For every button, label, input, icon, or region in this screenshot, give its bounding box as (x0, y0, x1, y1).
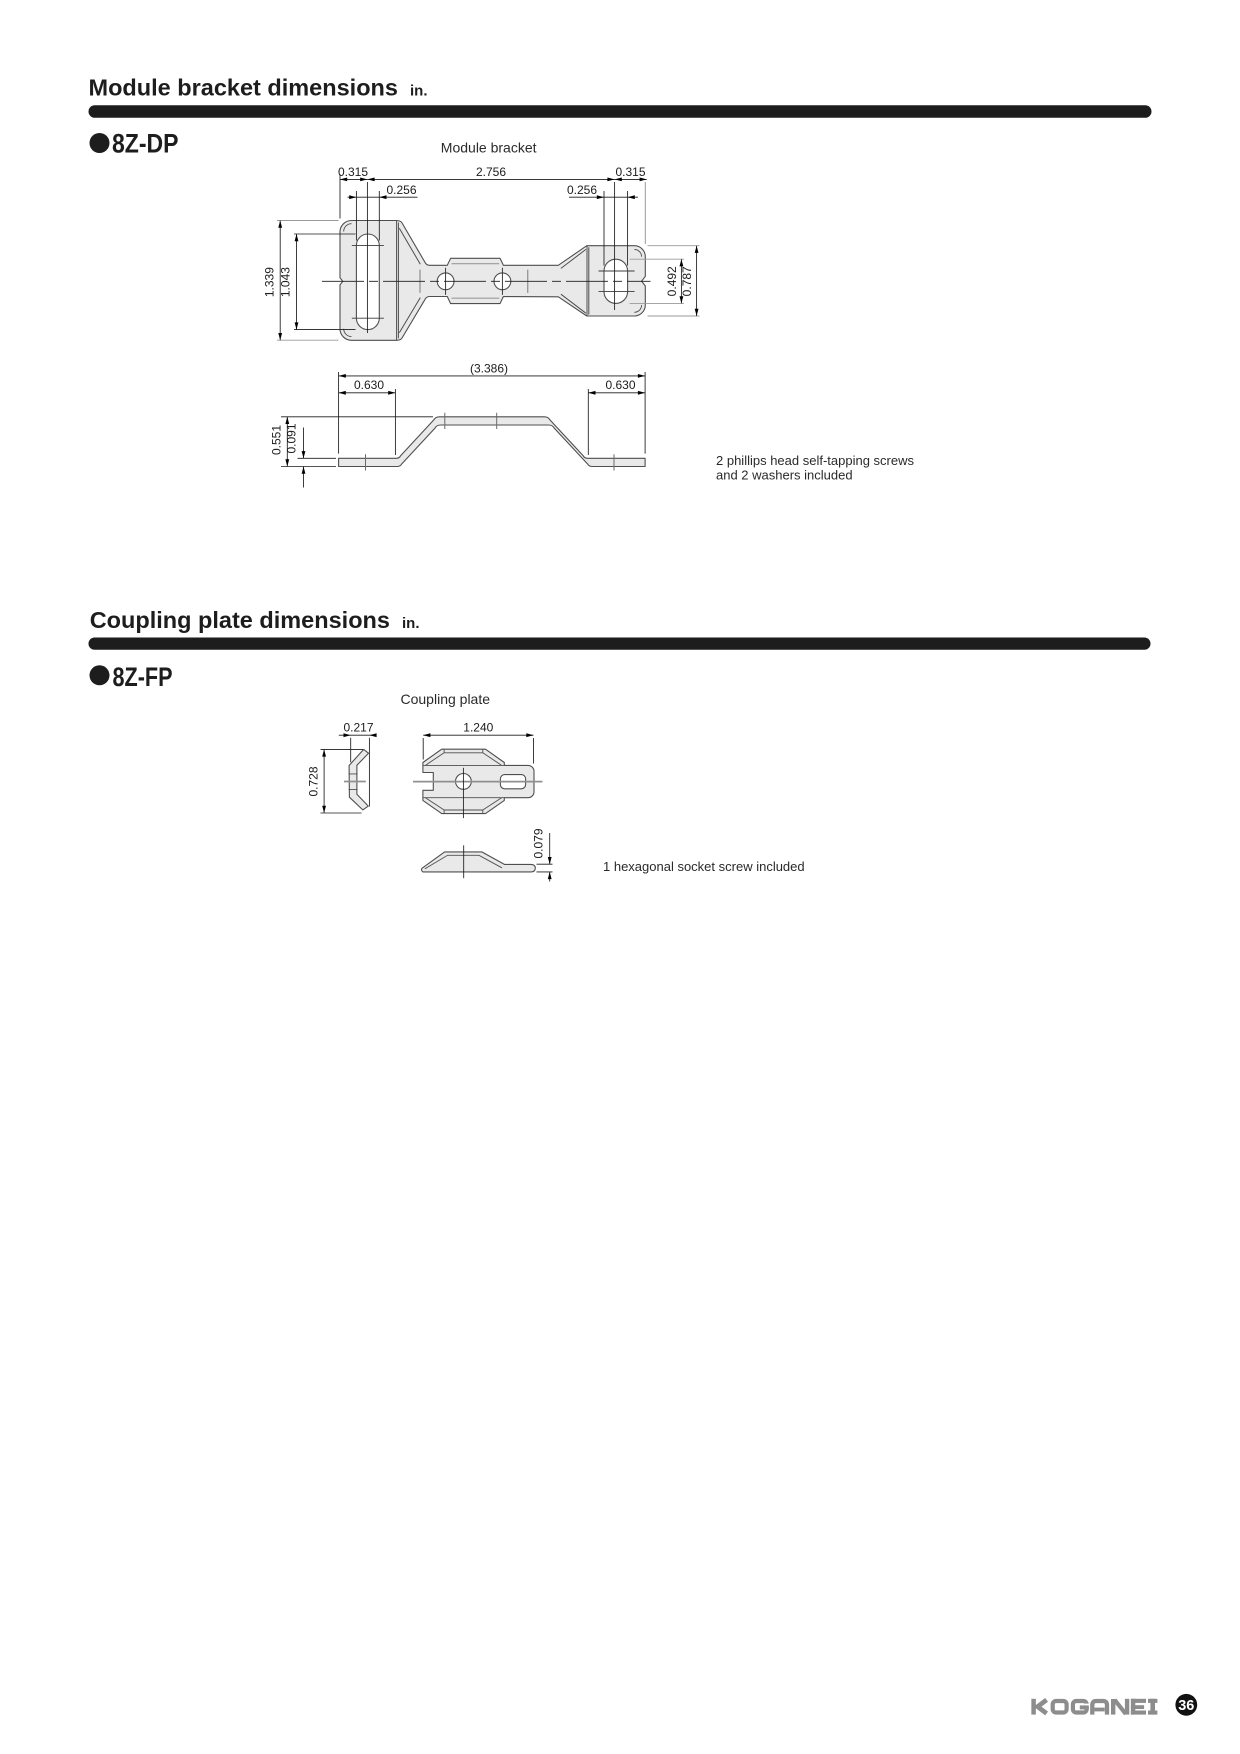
svg-text:(3.386): (3.386) (470, 361, 508, 375)
svg-text:0.079: 0.079 (532, 828, 546, 858)
svg-text:2 phillips head self-tapping s: 2 phillips head self-tapping screws (716, 453, 914, 468)
svg-text:0.091: 0.091 (284, 423, 298, 453)
svg-text:Coupling plate dimensions: Coupling plate dimensions (90, 607, 390, 633)
svg-text:0.630: 0.630 (354, 378, 384, 392)
svg-text:0.728: 0.728 (306, 766, 320, 796)
svg-text:1.043: 1.043 (279, 267, 293, 297)
svg-text:Coupling plate: Coupling plate (401, 691, 491, 707)
svg-text:0.256: 0.256 (386, 183, 416, 197)
svg-text:36: 36 (1178, 1698, 1194, 1714)
svg-text:0.315: 0.315 (338, 165, 368, 179)
svg-text:0.315: 0.315 (615, 165, 645, 179)
svg-text:8Z-FP: 8Z-FP (113, 662, 173, 692)
svg-text:and 2 washers included: and 2 washers included (716, 467, 853, 482)
svg-text:in.: in. (402, 615, 420, 632)
svg-text:0.492: 0.492 (665, 266, 679, 296)
svg-text:0.787: 0.787 (680, 266, 694, 296)
svg-text:0.256: 0.256 (567, 183, 597, 197)
svg-text:0.551: 0.551 (270, 425, 284, 455)
svg-text:1 hexagonal socket screw inclu: 1 hexagonal socket screw included (603, 859, 805, 874)
svg-text:in.: in. (410, 83, 428, 100)
svg-text:2.756: 2.756 (476, 165, 506, 179)
svg-text:1.240: 1.240 (463, 721, 493, 735)
svg-text:0.217: 0.217 (343, 721, 373, 735)
svg-text:0.630: 0.630 (605, 378, 635, 392)
svg-text:1.339: 1.339 (263, 267, 277, 297)
svg-text:Module bracket dimensions: Module bracket dimensions (89, 75, 398, 101)
svg-text:Module bracket: Module bracket (441, 139, 537, 155)
svg-text:8Z-DP: 8Z-DP (112, 128, 179, 158)
